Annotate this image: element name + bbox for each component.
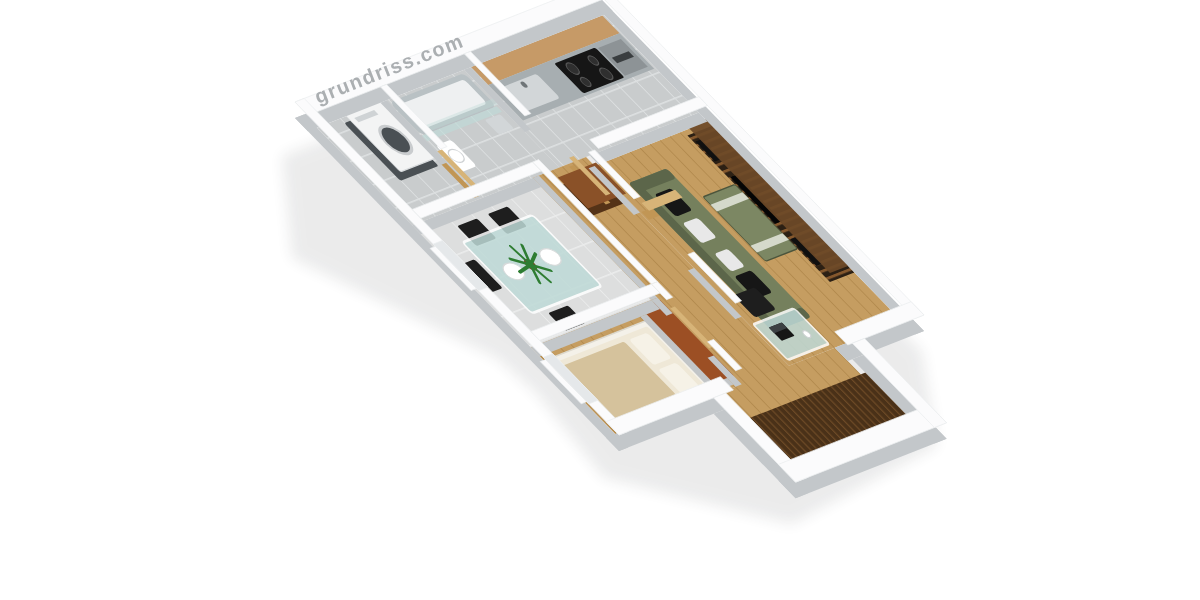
floorplan-render-canvas: grundriss.com bbox=[0, 0, 1200, 600]
apartment-3d-floorplan: grundriss.com bbox=[0, 0, 1200, 600]
